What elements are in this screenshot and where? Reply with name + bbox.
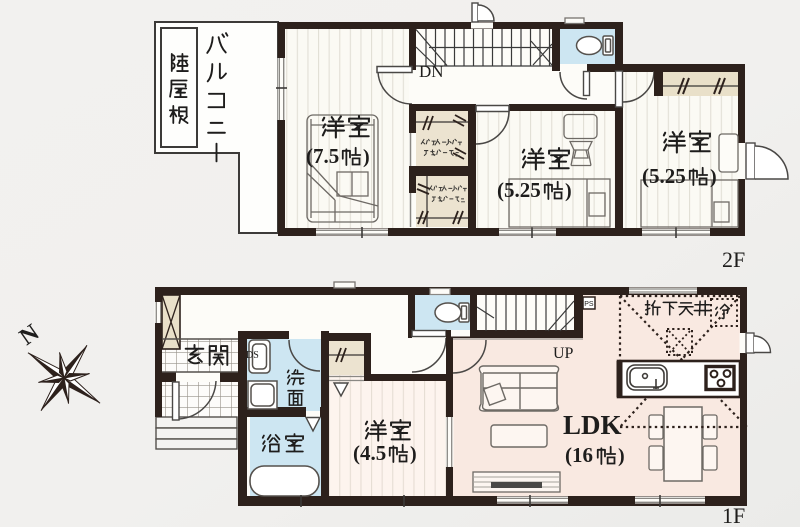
svg-text:UP: UP — [553, 345, 574, 362]
svg-text:DS: DS — [246, 350, 259, 361]
svg-text:DN: DN — [419, 62, 444, 81]
svg-text:(4.5: (4.5 — [353, 441, 386, 465]
svg-text:(7.5: (7.5 — [306, 144, 339, 168]
svg-text:(5.25: (5.25 — [497, 178, 541, 202]
svg-text:): ) — [410, 443, 417, 465]
svg-text:1F: 1F — [722, 503, 745, 527]
svg-text:): ) — [363, 146, 370, 168]
svg-text:(16: (16 — [565, 443, 593, 467]
svg-text:(5.25: (5.25 — [642, 164, 686, 188]
svg-text:): ) — [618, 445, 625, 467]
svg-text:): ) — [565, 180, 572, 202]
svg-text:PS: PS — [584, 301, 594, 308]
svg-text:LDK: LDK — [563, 410, 622, 440]
svg-text:2F: 2F — [722, 247, 745, 272]
svg-text:): ) — [710, 166, 717, 188]
